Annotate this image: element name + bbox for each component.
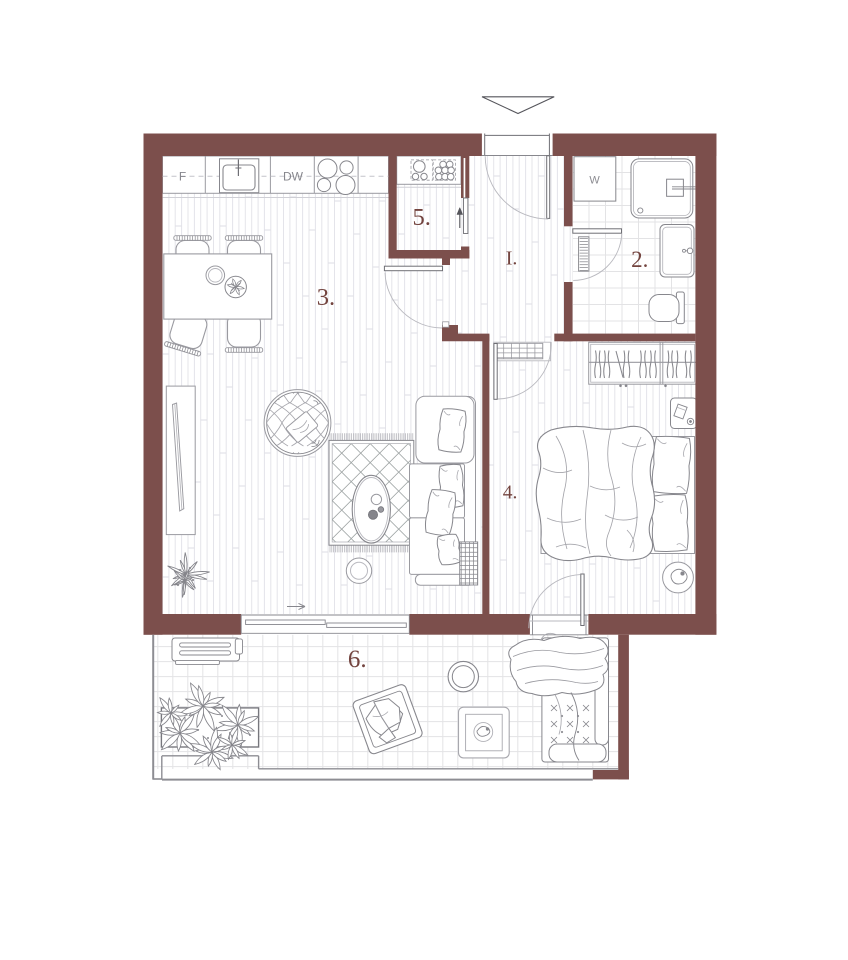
svg-text:3.: 3. [317, 284, 335, 311]
svg-text:6.: 6. [348, 646, 367, 673]
svg-text:I.: I. [506, 247, 518, 269]
svg-text:4.: 4. [503, 482, 518, 503]
svg-text:W: W [589, 175, 600, 187]
svg-text:DW: DW [283, 170, 304, 184]
svg-text:F: F [179, 170, 186, 184]
svg-text:5.: 5. [413, 204, 431, 231]
svg-text:2.: 2. [631, 247, 648, 272]
